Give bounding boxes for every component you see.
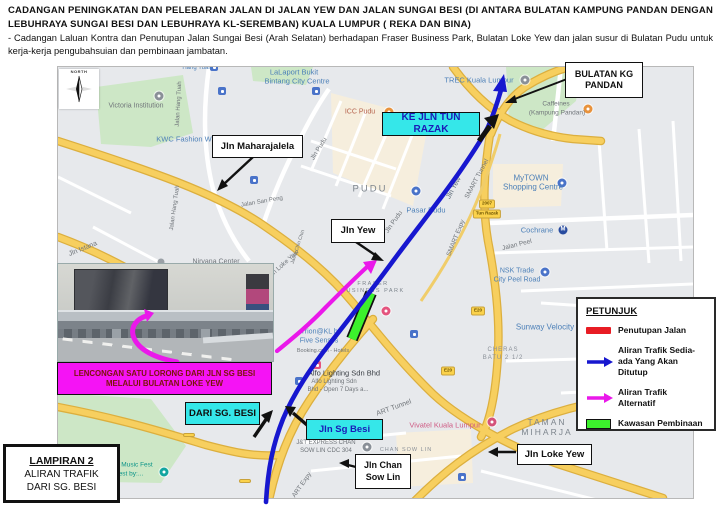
legend-label: Penutupan Jalan — [618, 325, 686, 336]
road-closure-symbol — [586, 327, 611, 334]
legend-petunjuk: PETUNJUK Penutupan Jalan Aliran Trafik S… — [576, 297, 716, 431]
callout-text: DARI SG. BESI — [189, 408, 256, 420]
callout-jln-sg-besi: Jln Sg Besi — [306, 419, 383, 440]
callout-lencongan: LENCONGAN SATU LORONG DARI JLN SG BESI M… — [57, 362, 272, 395]
document-title: CADANGAN PENINGKATAN DAN PELEBARAN JALAN… — [8, 4, 713, 32]
callout-text: KE JLN TUN RAZAK — [383, 112, 479, 137]
callout-text: Jln Maharajalela — [221, 141, 294, 153]
annex-line: DARI SG. BESI — [27, 482, 96, 493]
legend-title: PETUNJUK — [586, 306, 706, 317]
callout-text: PANDAN — [585, 80, 623, 91]
annex-lampiran-box: LAMPIRAN 2 ALIRAN TRAFIK DARI SG. BESI — [3, 444, 120, 503]
document-subtitle: - Cadangan Laluan Kontra dan Penutupan J… — [8, 32, 713, 58]
legend-item-construction-area: Kawasan Pembinaan — [586, 418, 706, 429]
callout-jln-loke-yew: Jln Loke Yew — [517, 444, 592, 465]
photo-flyover-deck — [58, 310, 273, 321]
photo-billboard-left — [74, 269, 168, 311]
legend-item-existing-flow: Aliran Trafik Sedia-ada Yang Akan Ditutu… — [586, 345, 706, 378]
callout-text: Jln Sg Besi — [319, 424, 370, 436]
callout-jln-chan-sow-lin: Jln Chan Sow Lin — [355, 454, 411, 489]
legend-label: Aliran Trafik Alternatif — [618, 387, 706, 409]
legend-item-road-closure: Penutupan Jalan — [586, 325, 706, 336]
north-compass: NORTH — [59, 69, 99, 109]
callout-jln-maharajalela: Jln Maharajalela — [212, 135, 303, 158]
annex-title: LAMPIRAN 2 — [29, 455, 93, 467]
legend-label: Kawasan Pembinaan — [618, 418, 703, 429]
callout-jln-yew: Jln Yew — [331, 219, 385, 243]
compass-rose-icon — [62, 74, 96, 106]
callout-dari-sg-besi: DARI SG. BESI — [185, 402, 260, 425]
callout-bulatan-kg-pandan: BULATAN KG PANDAN — [565, 62, 643, 98]
annex-line: ALIRAN TRAFIK — [24, 469, 98, 480]
site-photo-inset — [57, 263, 274, 362]
callout-text: Jln Chan — [364, 460, 402, 471]
callout-text: LENCONGAN SATU LORONG DARI JLN SG BESI — [74, 369, 255, 379]
legend-item-alternative-flow: Aliran Trafik Alternatif — [586, 387, 706, 409]
callout-text: MELALUI BULATAN LOKE YEW — [106, 379, 223, 389]
legend-label: Aliran Trafik Sedia-ada Yang Akan Ditutu… — [618, 345, 706, 378]
document-header: CADANGAN PENINGKATAN DAN PELEBARAN JALAN… — [8, 4, 713, 58]
construction-area-symbol — [586, 419, 611, 429]
callout-ke-jln-tun-razak: KE JLN TUN RAZAK — [382, 112, 480, 136]
callout-text: BULATAN KG — [575, 69, 633, 80]
callout-text: Sow Lin — [366, 472, 401, 483]
magenta-arrow-symbol — [586, 392, 614, 404]
traffic-plan-page: CADANGAN PENINGKATAN DAN PELEBARAN JALAN… — [0, 0, 720, 509]
blue-arrow-symbol — [586, 356, 614, 368]
callout-text: Jln Loke Yew — [525, 449, 585, 461]
photo-flyover-girder — [58, 321, 273, 329]
callout-text: Jln Yew — [341, 225, 376, 237]
